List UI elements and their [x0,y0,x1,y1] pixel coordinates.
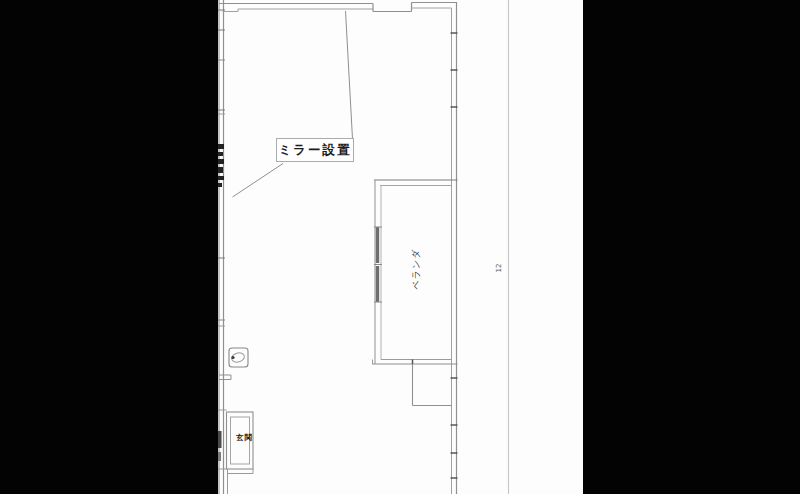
top-wall [219,3,457,12]
letterbox-right [583,0,800,494]
fixture-icon [229,348,248,367]
mirror-installation-label: ミラー設置 [276,138,354,162]
right-wall [451,3,458,494]
balcony-sash-upper [376,227,379,263]
floor-plan-screenshot: ミラー設置 ベランダ 玄関 12 [0,0,800,494]
balcony-label: ベランダ [410,248,422,290]
letterbox-left [0,0,218,494]
balcony-sash-lower [376,266,379,302]
building-setback [413,360,452,406]
entrance-door-marks [218,431,222,461]
leader-lines [233,11,353,197]
floor-plan-drawing [218,0,583,494]
entrance-label: 玄関 [236,433,253,443]
floor-plan-paper: ミラー設置 ベランダ 玄関 12 [218,0,583,494]
dimension-value-label: 12 [495,260,505,276]
left-wall [218,0,231,494]
